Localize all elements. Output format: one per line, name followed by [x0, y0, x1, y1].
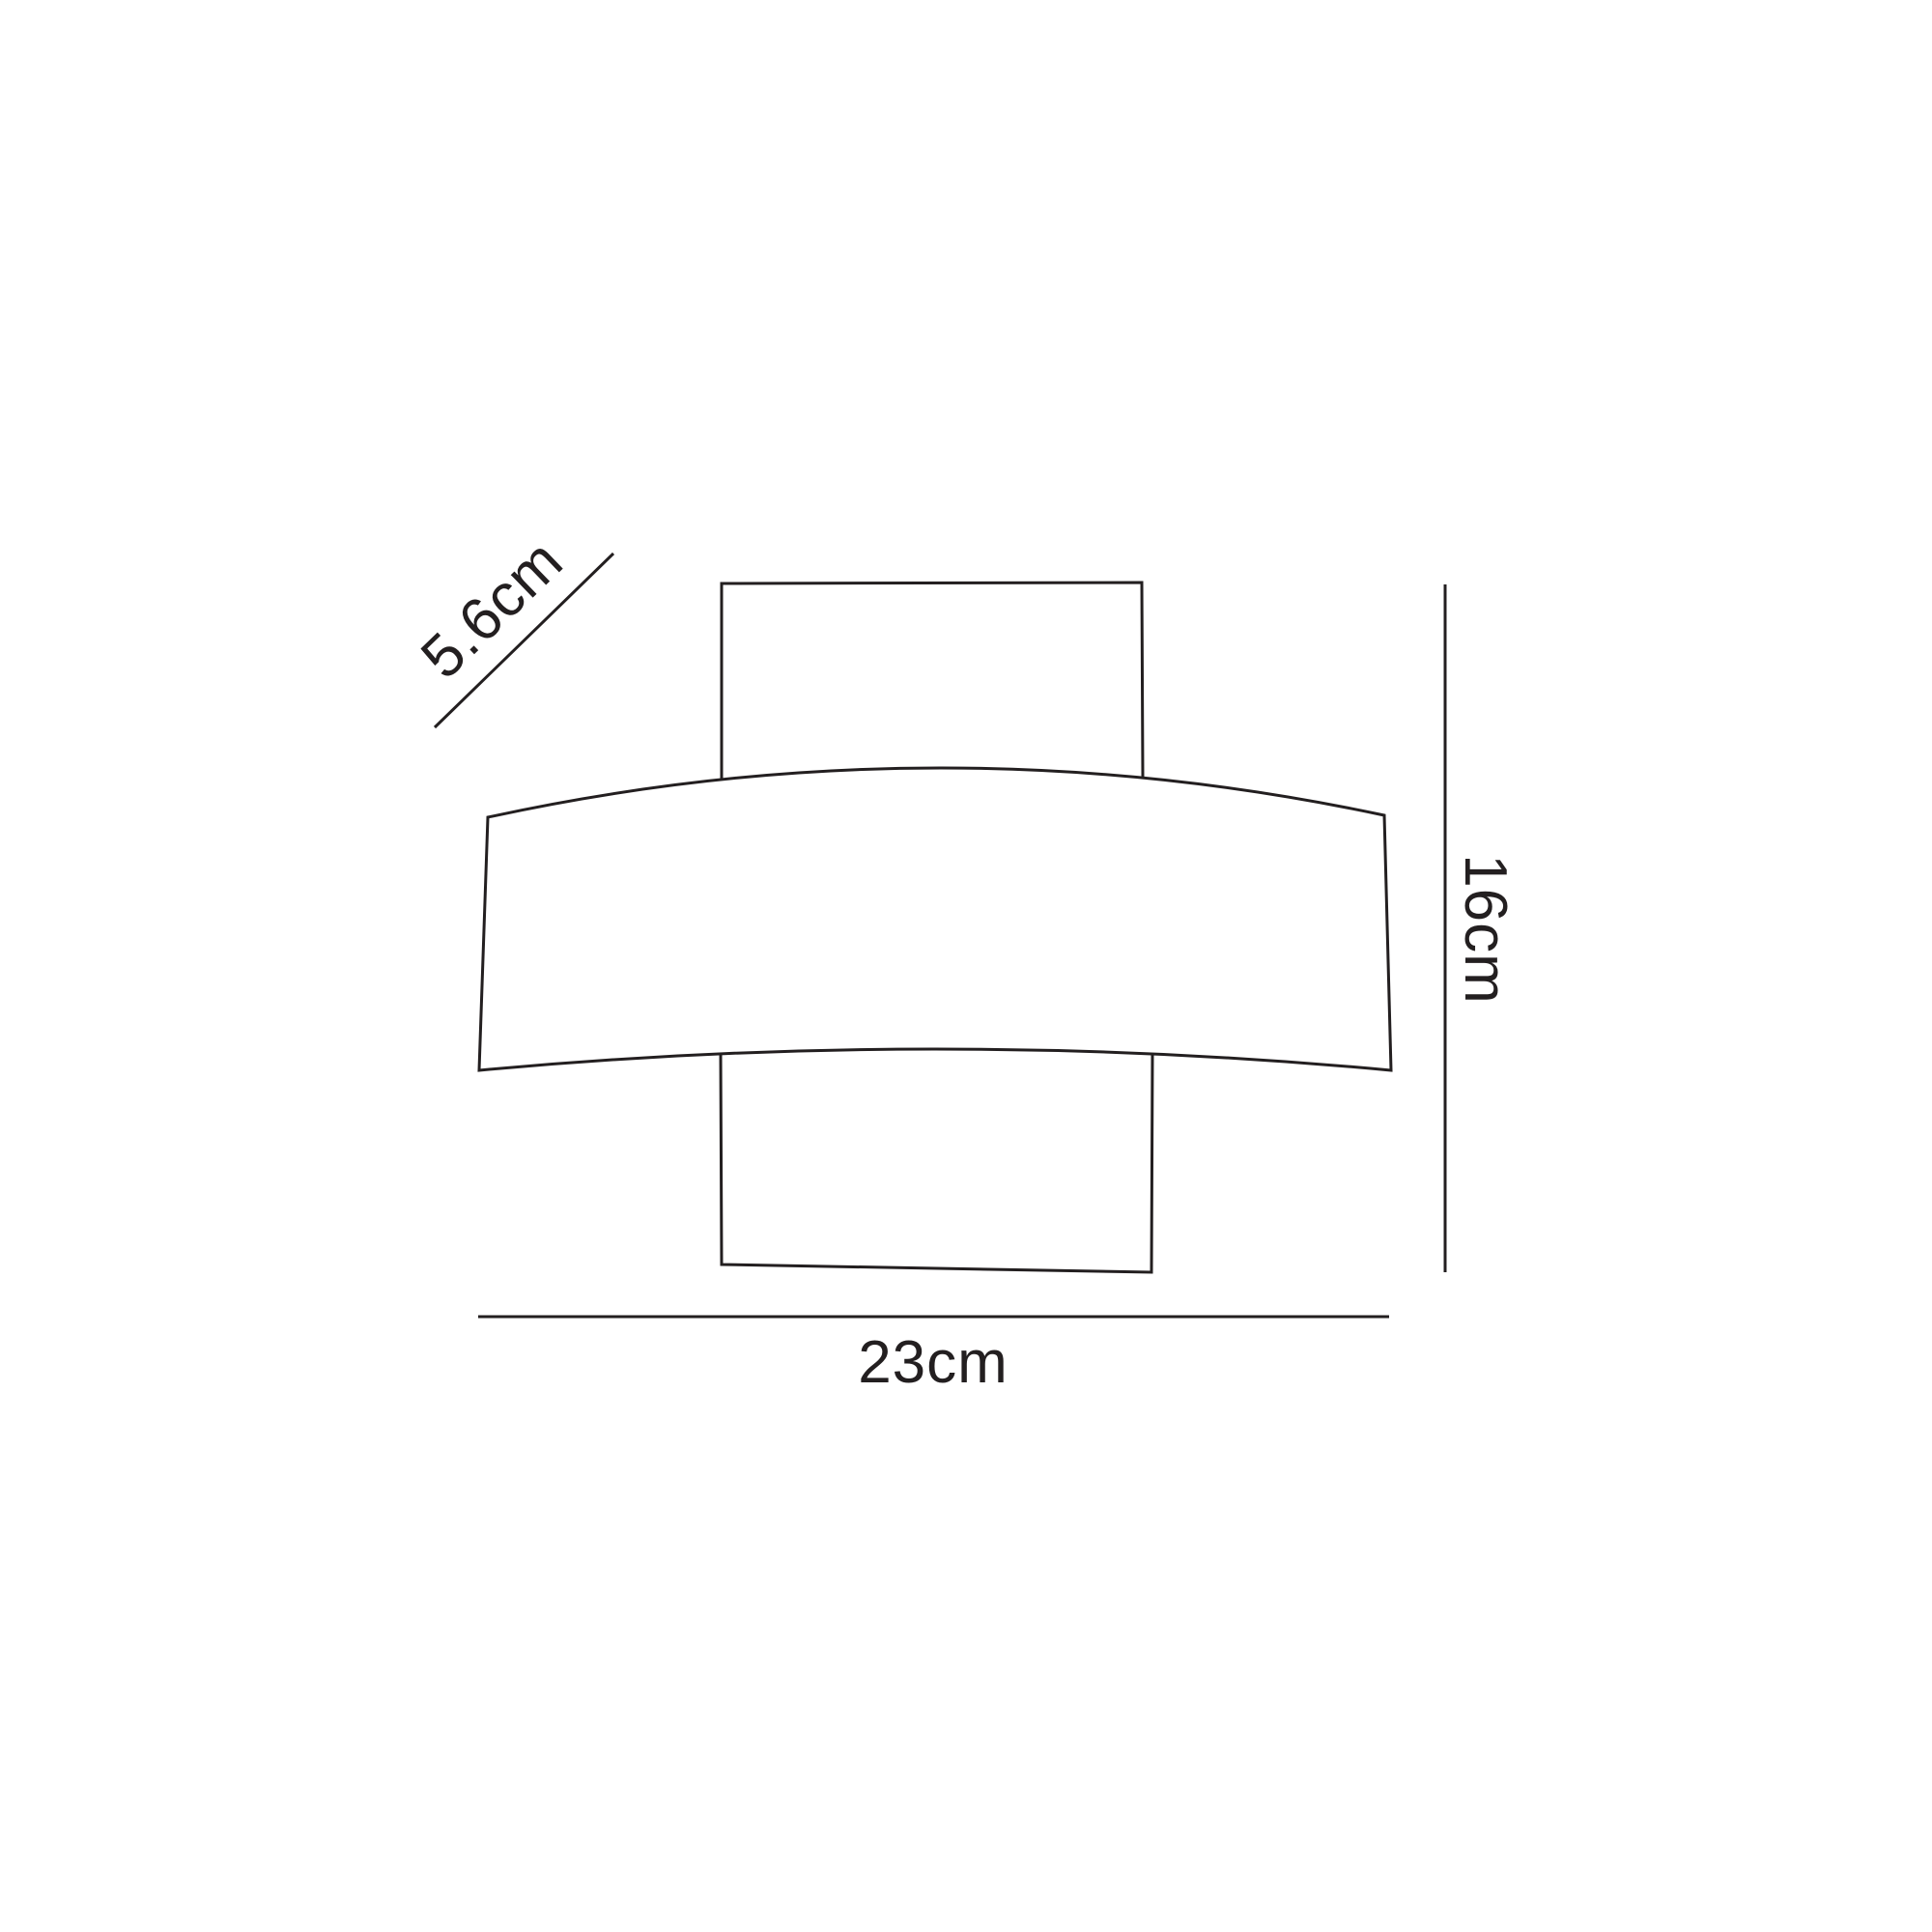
- width-dimension-label: 23cm: [858, 1333, 1009, 1393]
- height-dimension-label: 16cm: [1455, 854, 1515, 1005]
- bottom-plate-outline: [721, 1054, 1152, 1272]
- top-plate-outline: [722, 582, 1143, 779]
- front-band-outline: [479, 768, 1391, 1070]
- dimension-diagram: 5.6cm 16cm 23cm: [0, 0, 1932, 1932]
- wall-light-line-drawing: [0, 0, 1932, 1932]
